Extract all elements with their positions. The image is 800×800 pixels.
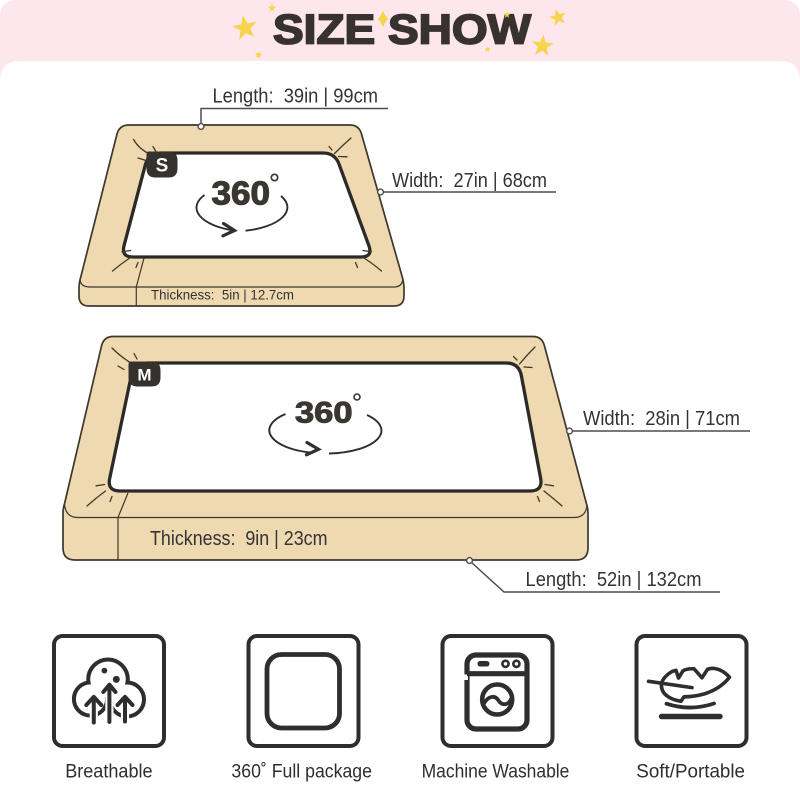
svg-text:Thickness: 9in | 23cm: Thickness: 9in | 23cm	[150, 528, 328, 550]
svg-text:360˚ Full package: 360˚ Full package	[231, 762, 372, 783]
svg-text:Machine Washable: Machine Washable	[422, 762, 570, 783]
svg-text:360: 360	[212, 175, 271, 212]
svg-text:Length: 52in | 132cm: Length: 52in | 132cm	[526, 569, 702, 591]
svg-text:SIZE SHOW: SIZE SHOW	[273, 6, 531, 53]
svg-text:Breathable: Breathable	[65, 762, 152, 783]
svg-text:Length: 39in | 99cm: Length: 39in | 99cm	[213, 86, 379, 108]
svg-text:S: S	[156, 156, 169, 177]
svg-text:Soft/Portable: Soft/Portable	[636, 762, 745, 783]
svg-text:M: M	[137, 366, 151, 385]
svg-text:Width: 28in | 71cm: Width: 28in | 71cm	[583, 408, 740, 430]
svg-text:Thickness: 5in | 12.7cm: Thickness: 5in | 12.7cm	[151, 287, 294, 303]
svg-text:360: 360	[295, 397, 353, 430]
svg-text:Width: 27in | 68cm: Width: 27in | 68cm	[392, 170, 547, 192]
